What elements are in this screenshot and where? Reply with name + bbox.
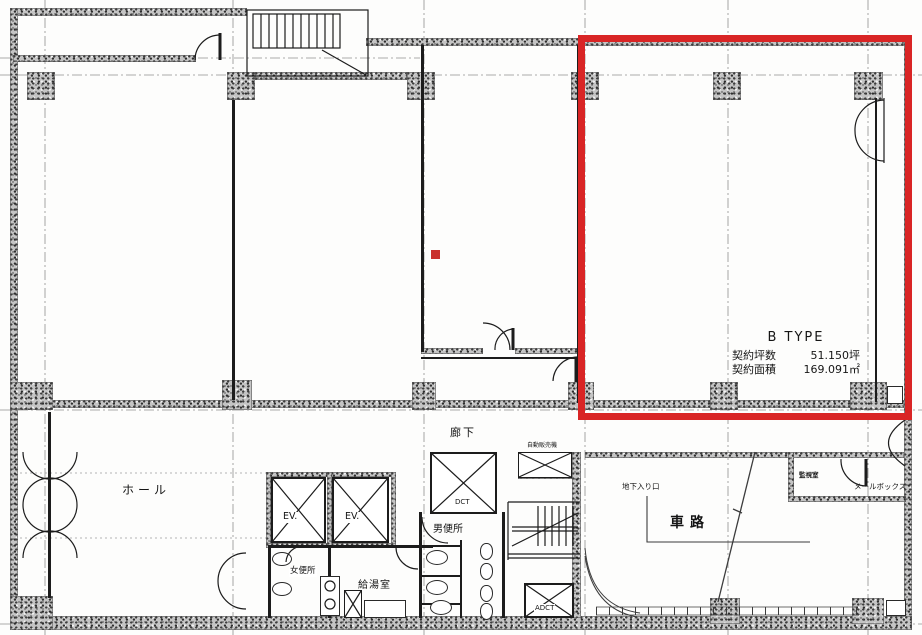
- door-arc: [286, 546, 303, 562]
- door-arc: [396, 547, 418, 569]
- entrance-door-arc: [23, 531, 77, 558]
- mailbox-label: メールボックス: [854, 483, 906, 492]
- sink-basin: [325, 599, 335, 609]
- basement-entrance-label: 地下入り口: [622, 483, 660, 492]
- hall-label: ホール: [122, 484, 170, 498]
- adct-x-brace: [525, 584, 573, 617]
- elevator-x-brace: [333, 478, 388, 542]
- duct-label: DCT: [454, 498, 471, 506]
- contract-area-label: 契約面積: [732, 364, 776, 377]
- unit-name: B TYPE: [732, 331, 860, 346]
- curb-curve: [889, 420, 906, 466]
- red-marker: [431, 250, 440, 259]
- ramp-curb: [585, 556, 637, 617]
- mens-toilet-label: 男便所: [433, 524, 463, 536]
- door-arc: [483, 323, 510, 350]
- contract-area-value: 169.091㎡: [804, 364, 861, 377]
- vending-x-brace: [519, 453, 571, 477]
- driveway-label: 車路: [670, 515, 710, 531]
- stair-run-line: [322, 50, 366, 75]
- door-arc: [195, 35, 220, 60]
- elevator-x-brace: [272, 478, 325, 542]
- door-arc: [553, 357, 577, 381]
- lower-stair-treads: [538, 506, 573, 546]
- womens-toilet-label: 女便所: [289, 567, 317, 577]
- kitchen-x-brace: [345, 591, 361, 617]
- stair-flight: [253, 14, 340, 48]
- contract-tsubo-label: 契約坪数: [732, 350, 776, 363]
- contract-tsubo-value: 51.150坪: [811, 350, 861, 363]
- ramp-diagonal: [718, 452, 755, 602]
- elevator-1-label: EV.: [282, 512, 298, 523]
- vending-machine-label: 自動販売機: [527, 443, 557, 450]
- entrance-door-arc: [23, 452, 77, 479]
- kitchenette-label: 給湯室: [358, 580, 391, 592]
- elevator-2-label: EV.: [344, 512, 360, 523]
- unit-info: B TYPE 契約坪数 51.150坪 契約面積 169.091㎡: [732, 331, 860, 376]
- adct-label: ADCT: [534, 604, 555, 612]
- sink-basin: [325, 581, 335, 591]
- stair-treads: [261, 14, 333, 48]
- entrance-door-arc: [23, 478, 77, 532]
- ramp-curb: [585, 548, 640, 613]
- door-arc: [218, 553, 246, 609]
- floor-plan: ホール 廊下 EV. EV. DCT ADCT 男便所 女便所 給湯室 自動販売…: [0, 0, 922, 635]
- corridor-label: 廊下: [450, 427, 476, 440]
- monitor-room-label: 監視室: [799, 472, 819, 479]
